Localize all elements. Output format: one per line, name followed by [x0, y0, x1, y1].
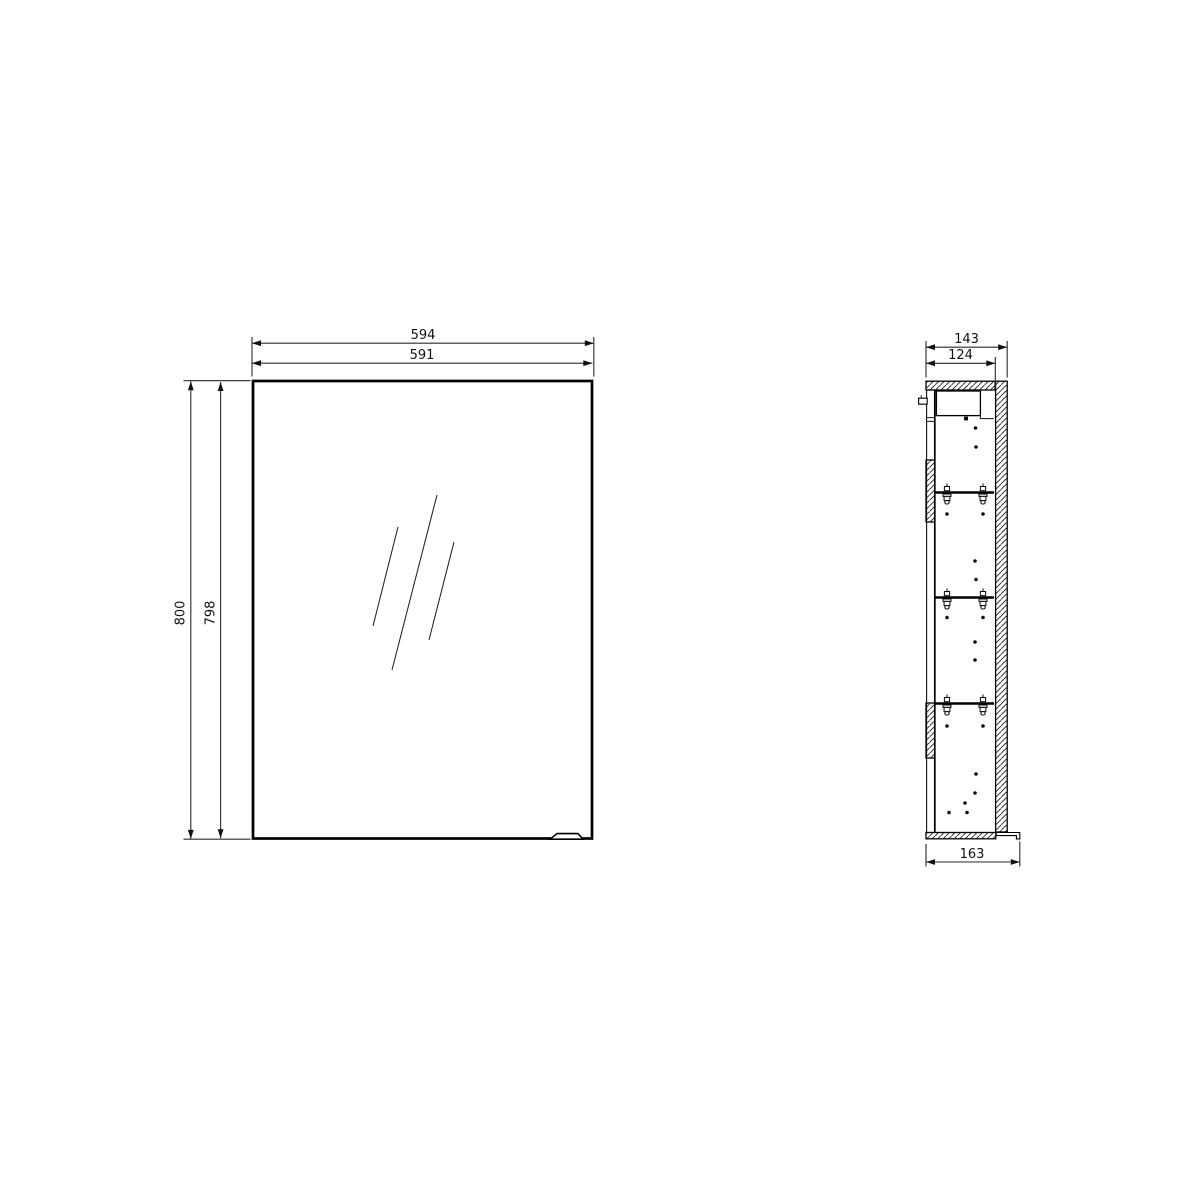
top-compartment [936, 391, 993, 420]
door-handle-profile [996, 833, 1020, 839]
dim-label-594: 594 [411, 328, 436, 343]
dim-label-800: 800 [174, 601, 189, 626]
front-view: 594 591 800 798 [174, 328, 594, 839]
cabinet-technical-drawing: 594 591 800 798 [0, 0, 1200, 1200]
shelves [935, 484, 994, 716]
mirror-door-section [996, 381, 1008, 832]
technical-drawing-canvas: 594 591 800 798 [0, 0, 1200, 1200]
dim-side-depth-overall: 163 [926, 842, 1020, 867]
shelf-1 [935, 484, 994, 505]
side-section-view: 143 124 163 [919, 332, 1020, 867]
hanging-bracket [919, 395, 928, 404]
bottom-panel-section [926, 833, 996, 839]
dim-label-591: 591 [410, 348, 435, 363]
dim-front-width-inner: 591 [252, 348, 592, 363]
dim-label-124: 124 [948, 348, 973, 363]
shelf-pin-holes [945, 426, 985, 814]
mirror-front-outline [253, 381, 592, 839]
shelf-3 [935, 695, 994, 716]
top-panel-section [926, 381, 995, 390]
door-handle-front [550, 834, 583, 840]
wall-bracket-upper [926, 460, 935, 522]
fixing-detail [964, 417, 968, 421]
back-panel-strip [926, 390, 935, 833]
dim-label-143: 143 [954, 332, 979, 347]
dim-front-height-inner: 798 [204, 382, 221, 838]
dim-label-798: 798 [204, 601, 219, 626]
wall-bracket-lower [926, 703, 935, 758]
dim-label-163: 163 [960, 847, 985, 862]
shelf-2 [935, 589, 994, 610]
